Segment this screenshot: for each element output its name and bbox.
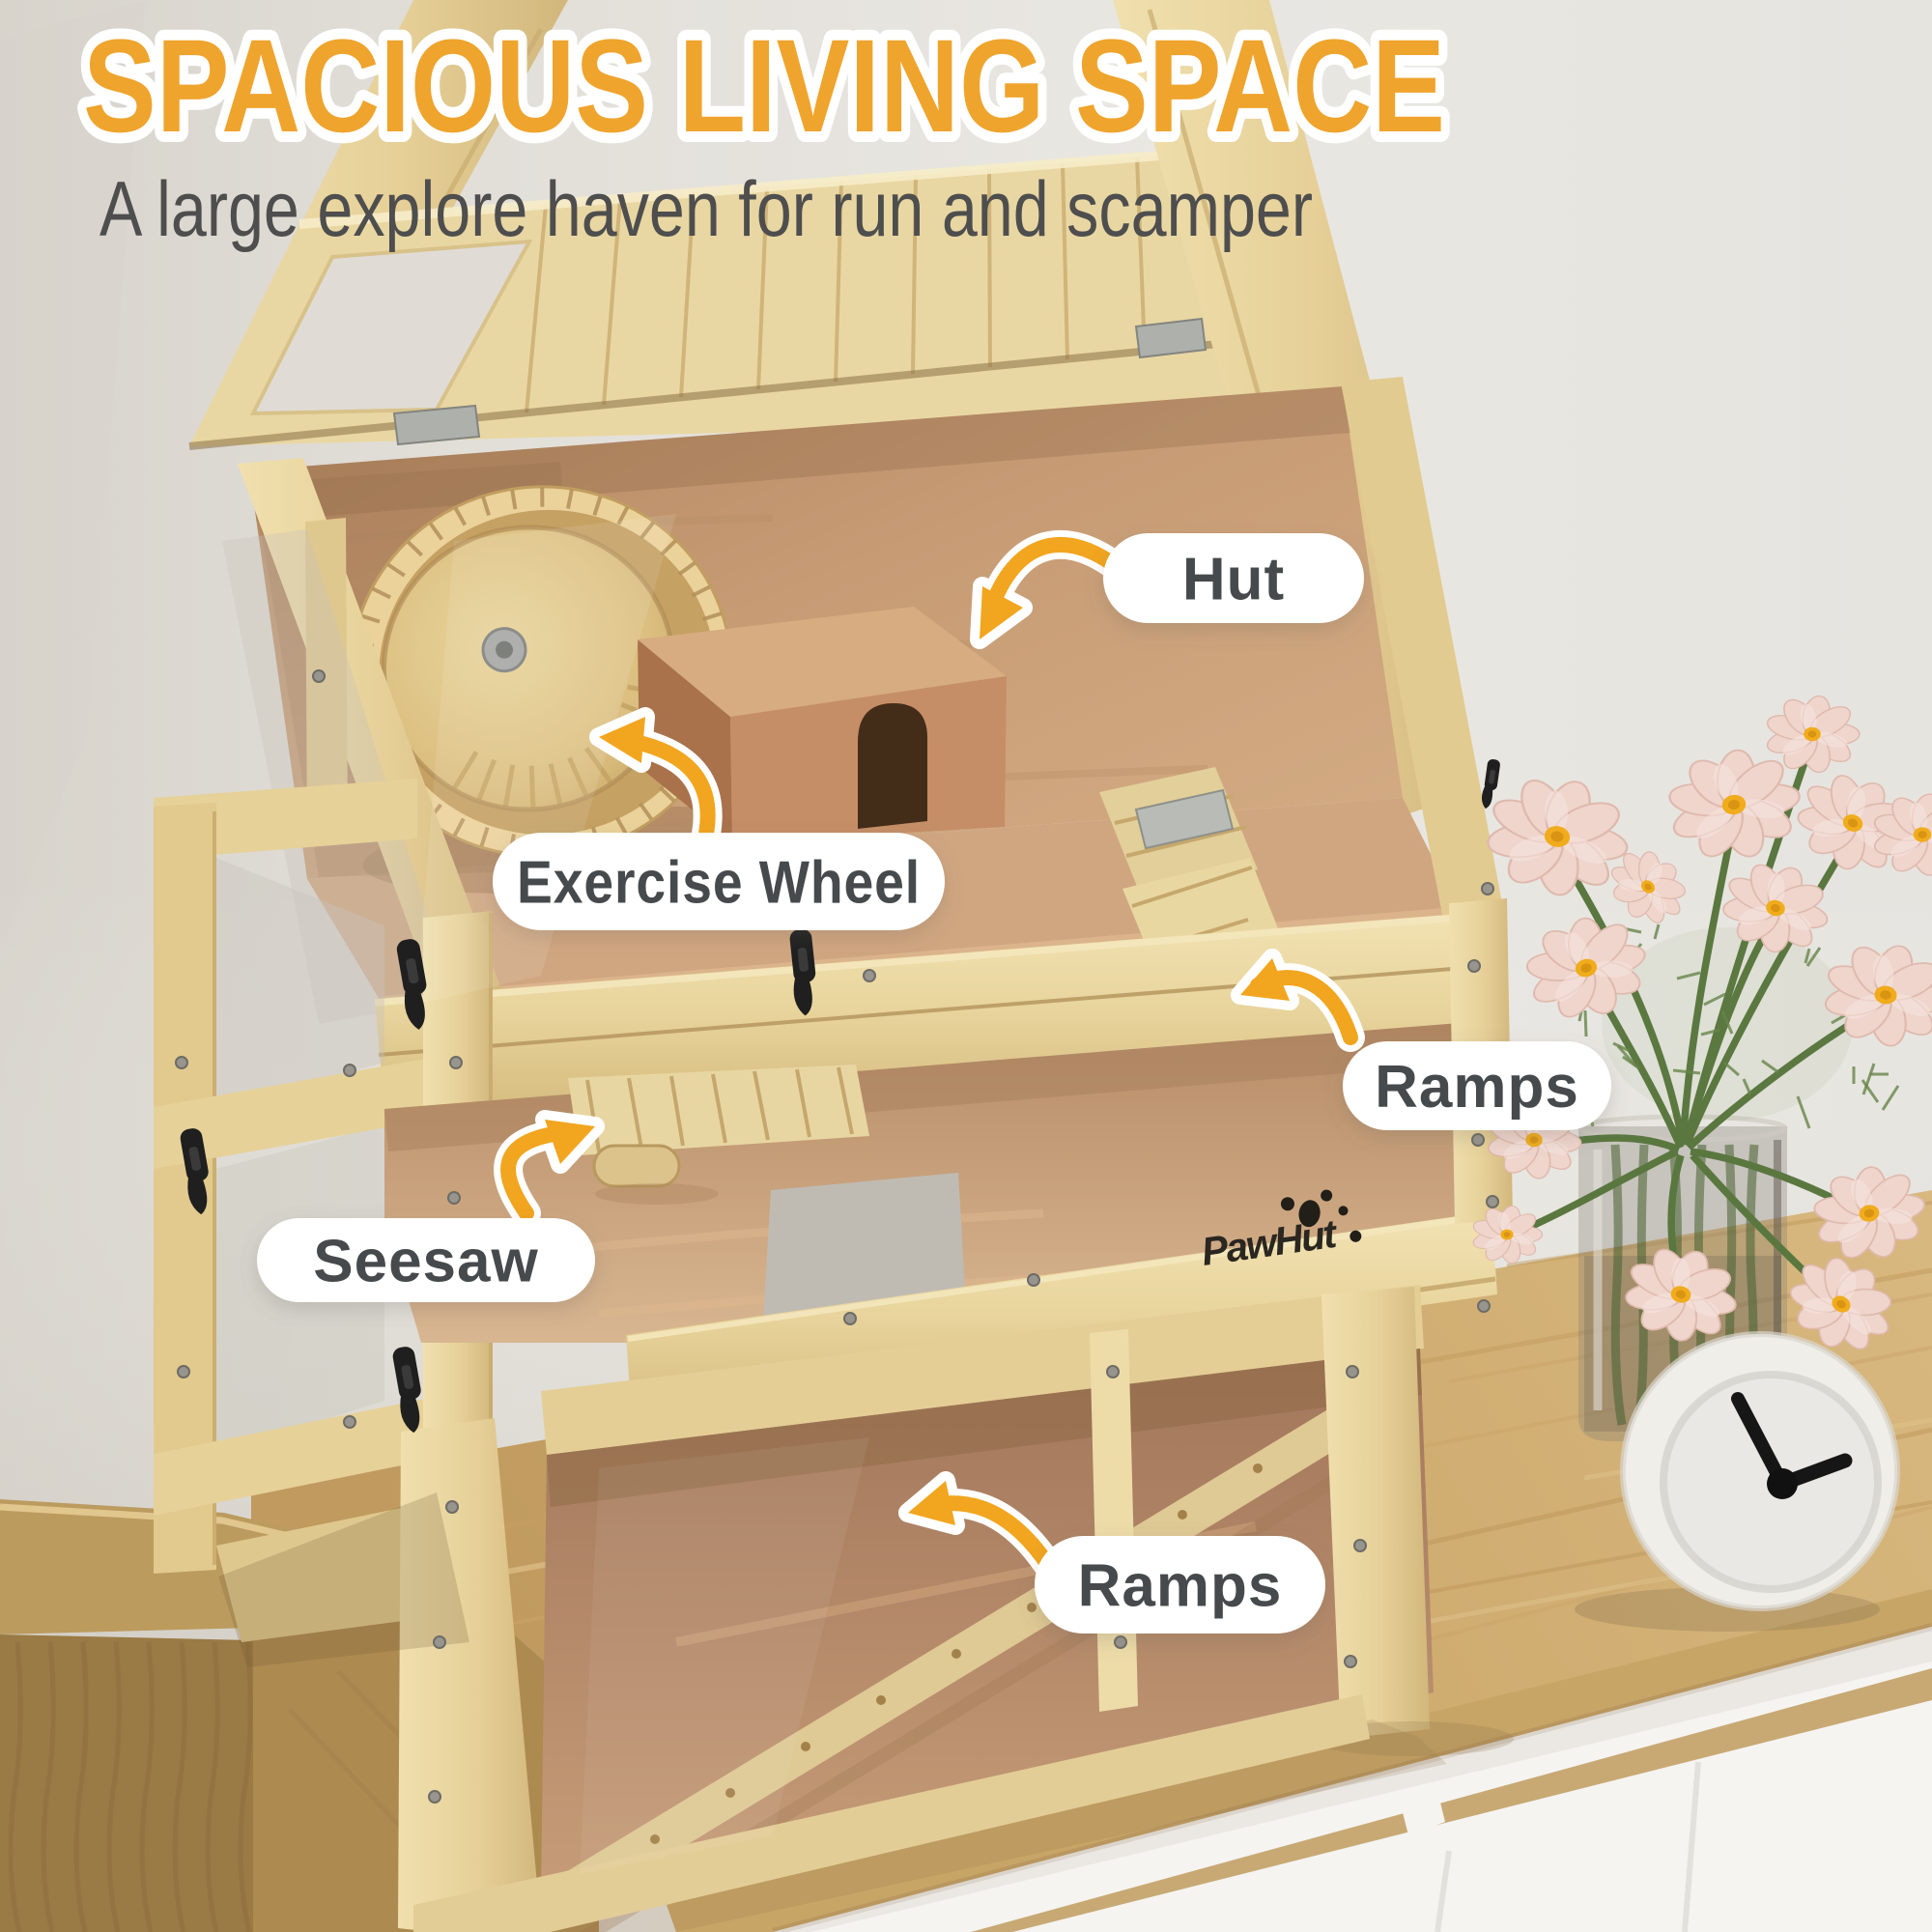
svg-text:Hut: Hut — [1182, 547, 1285, 613]
svg-text:Exercise Wheel: Exercise Wheel — [517, 850, 921, 917]
svg-text:Seesaw: Seesaw — [313, 1229, 539, 1295]
svg-text:SPACIOUS LIVING SPACE: SPACIOUS LIVING SPACE — [83, 13, 1445, 160]
svg-text:Ramps: Ramps — [1078, 1553, 1283, 1620]
svg-text:A large explore haven for run: A large explore haven for run and scampe… — [99, 166, 1313, 253]
svg-text:Ramps: Ramps — [1375, 1054, 1579, 1121]
